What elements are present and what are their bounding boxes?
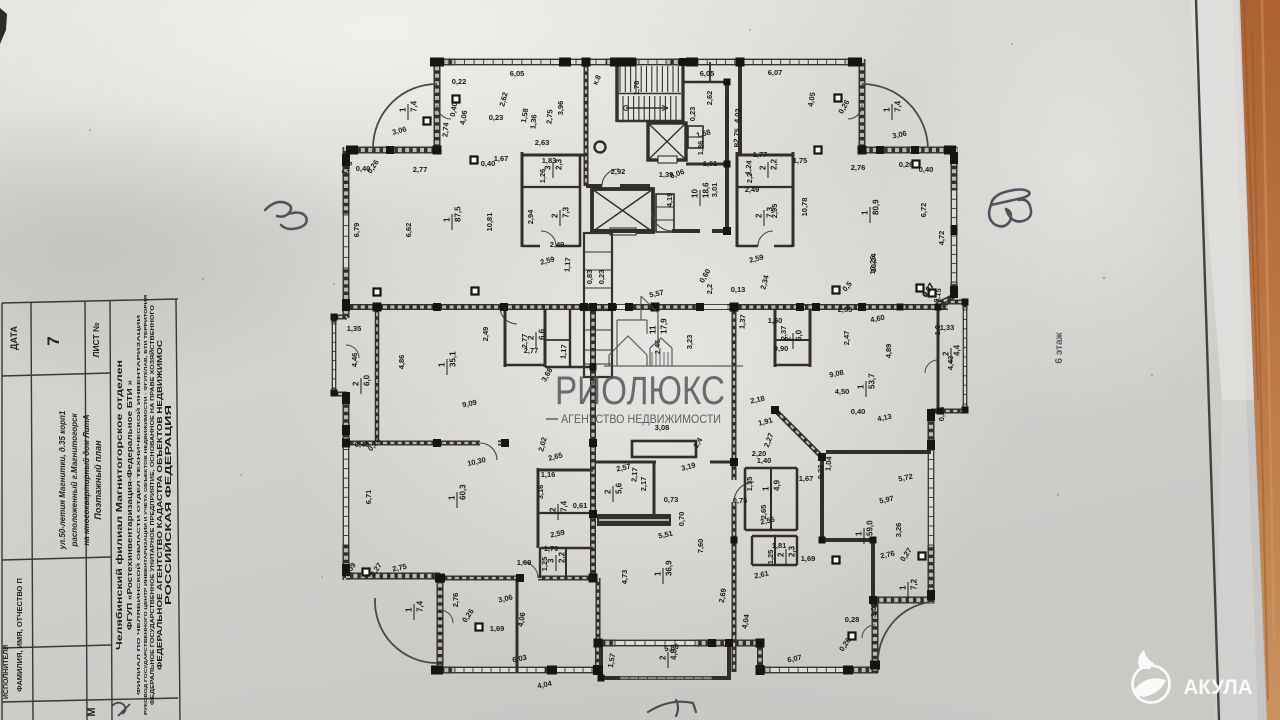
svg-text:1: 1 [861, 210, 870, 215]
svg-text:4,73: 4,73 [620, 570, 629, 585]
svg-text:2,3: 2,3 [788, 545, 797, 557]
svg-text:2,75: 2,75 [544, 109, 554, 124]
svg-text:2,74: 2,74 [440, 121, 450, 137]
svg-text:2: 2 [659, 655, 668, 660]
svg-text:ФГУП «Ростехинвентаризация-Фед: ФГУП «Ростехинвентаризация-Федеральное Б… [125, 380, 134, 630]
svg-text:1,26: 1,26 [538, 169, 547, 184]
svg-text:0,73: 0,73 [664, 495, 679, 504]
svg-text:7: 7 [44, 336, 63, 345]
svg-text:17,9: 17,9 [660, 318, 669, 334]
svg-text:0,28: 0,28 [845, 615, 860, 624]
svg-text:1,35: 1,35 [745, 477, 754, 492]
svg-text:3,96: 3,96 [556, 101, 565, 116]
svg-text:1,36: 1,36 [528, 114, 538, 129]
svg-text:1,83: 1,83 [542, 156, 557, 165]
svg-text:2,2: 2,2 [705, 284, 714, 294]
svg-text:5,6: 5,6 [615, 482, 624, 494]
svg-text:1,67: 1,67 [494, 154, 509, 163]
svg-text:1: 1 [399, 107, 408, 112]
svg-text:0,23: 0,23 [688, 107, 697, 122]
svg-text:ФАМИЛИЯ, ИМЯ, ОТЧЕСТВО П: ФАМИЛИЯ, ИМЯ, ОТЧЕСТВО П [15, 578, 24, 692]
svg-text:Челябинский филиал Магнитогорс: Челябинский филиал Магнитогорское отделе… [114, 360, 124, 650]
svg-text:1: 1 [857, 384, 866, 389]
svg-text:6,0: 6,0 [363, 374, 372, 386]
svg-text:6,6: 6,6 [538, 328, 547, 340]
svg-text:7,2: 7,2 [910, 578, 919, 590]
svg-text:0,40: 0,40 [919, 165, 934, 174]
svg-text:7,4: 7,4 [416, 600, 425, 612]
svg-text:10,78: 10,78 [800, 198, 809, 217]
svg-text:М: М [86, 707, 98, 716]
svg-text:0,70: 0,70 [677, 512, 686, 527]
svg-text:6,07: 6,07 [768, 68, 783, 77]
svg-text:2: 2 [352, 381, 361, 386]
svg-text:2,2: 2,2 [745, 173, 754, 183]
svg-text:2,49: 2,49 [481, 327, 490, 342]
svg-text:1: 1 [762, 486, 771, 491]
svg-text:87,5: 87,5 [454, 206, 463, 222]
svg-text:4,4: 4,4 [953, 344, 962, 356]
svg-text:4,46: 4,46 [350, 353, 359, 368]
svg-text:АКУЛА: АКУЛА [1184, 676, 1253, 699]
svg-text:ИСПОЛНИТЕЛИ: ИСПОЛНИТЕЛИ [3, 645, 10, 699]
svg-text:Поэтажный план: Поэтажный план [93, 440, 103, 520]
svg-text:РОССИЙСКАЯ ФЕДЕРАЦИЯ: РОССИЙСКАЯ ФЕДЕРАЦИЯ [164, 405, 173, 605]
svg-text:2: 2 [551, 213, 560, 218]
svg-text:4,19: 4,19 [665, 193, 674, 208]
svg-text:1,67: 1,67 [799, 474, 814, 483]
svg-text:59,0: 59,0 [866, 520, 875, 536]
svg-text:2: 2 [942, 351, 951, 356]
svg-text:1,17: 1,17 [562, 257, 572, 272]
svg-text:1: 1 [899, 585, 908, 590]
svg-text:6,71: 6,71 [364, 490, 373, 505]
svg-text:6,05: 6,05 [510, 69, 525, 78]
svg-text:РУКОВОД ГОСУДАРСТВЕННОГО ЦЕНТР: РУКОВОД ГОСУДАРСТВЕННОГО ЦЕНТР ИНВЕНТАРИ… [143, 294, 149, 715]
svg-text:2,47: 2,47 [842, 331, 851, 346]
svg-text:4,86: 4,86 [397, 355, 406, 370]
svg-text:6,62: 6,62 [404, 223, 413, 238]
svg-text:7,4: 7,4 [410, 100, 419, 112]
svg-text:0,40: 0,40 [481, 159, 496, 168]
svg-text:2,20: 2,20 [752, 449, 767, 458]
svg-text:2,76: 2,76 [851, 163, 866, 172]
svg-text:4,50: 4,50 [835, 387, 850, 396]
svg-text:1,36: 1,36 [696, 141, 705, 156]
svg-text:4,9: 4,9 [773, 479, 782, 491]
svg-text:0,23: 0,23 [597, 270, 606, 285]
svg-text:2,2: 2,2 [770, 158, 779, 170]
svg-text:на многоквартирный дом ЛитА: на многоквартирный дом ЛитА [82, 414, 91, 545]
svg-text:ДАТА: ДАТА [9, 326, 19, 350]
svg-text:80,9: 80,9 [872, 199, 881, 215]
svg-text:3,03: 3,03 [869, 603, 878, 618]
svg-text:1,79: 1,79 [544, 544, 559, 553]
svg-text:1: 1 [654, 571, 663, 576]
svg-text:36,9: 36,9 [665, 560, 674, 576]
svg-text:2,17: 2,17 [629, 467, 639, 482]
svg-text:2,92: 2,92 [611, 167, 626, 176]
svg-text:2,77: 2,77 [413, 165, 428, 174]
svg-text:2: 2 [759, 165, 768, 170]
svg-text:6,05: 6,05 [700, 69, 715, 78]
svg-text:1,25: 1,25 [540, 557, 549, 572]
svg-text:6,72: 6,72 [919, 203, 928, 218]
svg-text:6 этаж: 6 этаж [1054, 331, 1065, 363]
svg-text:7,4: 7,4 [894, 100, 903, 112]
svg-text:1: 1 [443, 217, 452, 222]
svg-text:2,77: 2,77 [524, 346, 539, 355]
svg-text:4,72: 4,72 [937, 231, 946, 246]
svg-text:ФЕДЕРАЛЬНОЕ ГОСУДАРСТВЕННОЕ УН: ФЕДЕРАЛЬНОЕ ГОСУДАРСТВЕННОЕ УНИТАРНОЕ ПР… [148, 304, 156, 705]
svg-text:4,43: 4,43 [946, 356, 955, 371]
svg-text:2: 2 [549, 507, 558, 512]
svg-text:1,69: 1,69 [801, 554, 816, 563]
svg-text:ФЕДЕРАЛЬНОЕ АГЕНТСТВО КАДАСТРА: ФЕДЕРАЛЬНОЕ АГЕНТСТВО КАДАСТРА ОБЪЕКТОВ … [157, 340, 164, 670]
svg-text:4,89: 4,89 [884, 344, 893, 359]
svg-text:1,25: 1,25 [766, 550, 775, 565]
svg-text:ул.50-летия Магнитки, д.35 кор: ул.50-летия Магнитки, д.35 корп1 [58, 410, 67, 550]
svg-text:2,49: 2,49 [745, 185, 760, 194]
svg-text:1: 1 [855, 531, 864, 536]
svg-text:2: 2 [777, 552, 786, 557]
svg-text:1,04: 1,04 [823, 455, 833, 471]
svg-text:0,61: 0,61 [573, 501, 588, 510]
svg-text:0,26: 0,26 [899, 160, 914, 169]
svg-text:2: 2 [604, 489, 613, 494]
svg-text:3,16: 3,16 [536, 485, 545, 500]
svg-text:0,22: 0,22 [452, 77, 467, 86]
svg-text:1: 1 [438, 362, 447, 367]
svg-text:1,17: 1,17 [558, 344, 568, 359]
svg-text:3,23: 3,23 [685, 335, 694, 350]
svg-text:10,81: 10,81 [485, 213, 494, 232]
svg-text:1,81: 1,81 [772, 541, 787, 550]
svg-text:1: 1 [405, 607, 414, 612]
svg-text:2,95: 2,95 [770, 204, 779, 219]
svg-text:1,75: 1,75 [793, 156, 808, 165]
svg-text:2,76: 2,76 [451, 593, 460, 608]
svg-text:1,9: 1,9 [933, 325, 942, 335]
svg-text:ЛИСТ №: ЛИСТ № [91, 322, 101, 358]
svg-text:1,78: 1,78 [632, 81, 641, 96]
svg-text:2,49: 2,49 [550, 240, 565, 249]
svg-text:1,69: 1,69 [517, 558, 532, 567]
svg-text:7,60: 7,60 [696, 539, 705, 554]
svg-text:6,0: 6,0 [795, 329, 804, 341]
svg-text:0,83: 0,83 [585, 270, 594, 285]
svg-text:0,24: 0,24 [937, 406, 946, 421]
svg-text:2,2: 2,2 [558, 551, 567, 563]
svg-text:АГЕНТСТВО НЕДВИЖИМОСТИ: АГЕНТСТВО НЕДВИЖИМОСТИ [561, 412, 721, 426]
svg-text:0,40: 0,40 [851, 407, 866, 416]
svg-text:в2,75: в2,75 [731, 128, 742, 148]
svg-text:2,63: 2,63 [535, 138, 550, 147]
svg-text:60,3: 60,3 [459, 484, 468, 500]
svg-text:2,62: 2,62 [705, 91, 714, 106]
svg-text:0,23: 0,23 [489, 113, 504, 122]
svg-text:1,69: 1,69 [490, 624, 505, 633]
svg-text:10,26: 10,26 [868, 256, 877, 275]
svg-text:4,02: 4,02 [732, 108, 742, 123]
svg-text:1,16: 1,16 [541, 470, 556, 479]
svg-text:7,4: 7,4 [560, 500, 569, 512]
svg-text:3,26: 3,26 [894, 523, 903, 538]
svg-text:10: 10 [691, 189, 700, 198]
svg-text:1,37: 1,37 [737, 314, 747, 329]
svg-text:2,17: 2,17 [639, 477, 648, 492]
svg-text:1,60: 1,60 [768, 316, 783, 325]
svg-text:0,75: 0,75 [733, 496, 748, 505]
svg-text:53,7: 53,7 [868, 373, 877, 389]
svg-text:2: 2 [755, 213, 764, 218]
svg-text:0,13: 0,13 [731, 285, 746, 294]
svg-text:1,61: 1,61 [703, 159, 718, 168]
svg-text:3,01: 3,01 [710, 183, 719, 198]
svg-text:6,79: 6,79 [352, 223, 361, 238]
svg-text:1,35: 1,35 [347, 324, 362, 333]
svg-text:2,55: 2,55 [838, 305, 853, 314]
svg-text:1,77: 1,77 [753, 150, 768, 159]
svg-text:расположенный г.Магнитогорск: расположенный г.Магнитогорск [70, 413, 79, 548]
svg-text:2,94: 2,94 [526, 209, 535, 224]
svg-text:1,39: 1,39 [659, 170, 674, 179]
svg-text:2,37: 2,37 [779, 326, 788, 341]
svg-text:1: 1 [448, 495, 457, 500]
svg-text:0,90: 0,90 [774, 344, 789, 353]
svg-text:7,3: 7,3 [562, 206, 571, 218]
svg-text:35,1: 35,1 [449, 351, 458, 367]
svg-text:1: 1 [883, 107, 892, 112]
svg-text:11: 11 [649, 325, 658, 334]
svg-text:РИОЛЮКС: РИОЛЮКС [555, 369, 725, 413]
